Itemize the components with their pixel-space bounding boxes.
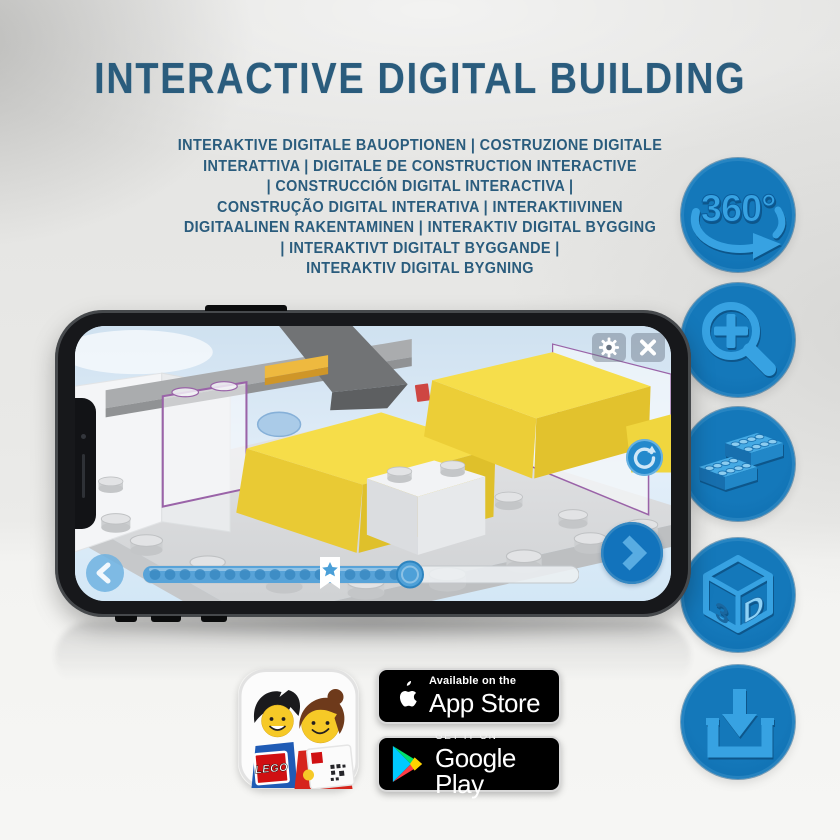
- subtitle-line: DIGITAALINEN RAKENTAMINEN | INTERAKTIV D…: [29, 218, 810, 239]
- subtitle-line: INTERATTIVA | DIGITALE DE CONSTRUCTION I…: [29, 157, 810, 178]
- feature-badge-zoom: [681, 283, 795, 397]
- phone-volume-up-button: [151, 616, 181, 622]
- chevron-right-icon: [601, 522, 663, 584]
- feature-badge-bricks: [681, 407, 795, 521]
- subtitle-line: CONSTRUÇÃO DIGITAL INTERATIVA | INTERAKT…: [29, 198, 810, 219]
- google-play-badge[interactable]: GET IT ON Google Play: [377, 736, 561, 792]
- subtitle-line: INTERAKTIV DIGITAL BYGNING: [29, 259, 810, 280]
- lego-logo: LEGO: [254, 752, 290, 785]
- rotate-model-button[interactable]: [626, 439, 663, 476]
- build-progress-slider[interactable]: [143, 556, 579, 600]
- gear-icon: [592, 333, 626, 362]
- subtitle-line: | CONSTRUCCIÓN DIGITAL INTERACTIVA |: [29, 177, 810, 198]
- rotate-arrow-icon: [626, 439, 663, 476]
- google-play-logo-icon: [391, 745, 425, 783]
- slider-thumb[interactable]: [397, 562, 423, 588]
- page-title-text: INTERACTIVE DIGITAL BUILDING: [94, 54, 746, 104]
- subtitle-line: INTERAKTIVE DIGITALE BAUOPTIONEN | COSTR…: [29, 136, 810, 157]
- cube-3d-right-label: D: [743, 587, 764, 631]
- app-store-name: App Store: [429, 690, 540, 716]
- phone-mockup: [55, 310, 691, 617]
- phone-reflection: [55, 622, 691, 692]
- speaker-slot: [82, 454, 85, 498]
- google-play-tagline: GET IT ON: [435, 732, 559, 742]
- bookmark-star-marker[interactable]: [320, 557, 340, 589]
- app-store-badge[interactable]: Available on the App Store: [377, 668, 561, 724]
- apple-logo-icon: [391, 678, 419, 714]
- phone-volume-down-button: [201, 616, 227, 622]
- lego-app-icon[interactable]: LEGO: [238, 669, 359, 789]
- qr-card: [307, 745, 355, 789]
- previous-step-button[interactable]: [86, 554, 124, 592]
- phone-notch: [75, 398, 96, 529]
- page-title: INTERACTIVE DIGITAL BUILDING: [0, 54, 840, 104]
- promo-poster: INTERACTIVE DIGITAL BUILDING INTERAKTIVE…: [0, 0, 840, 840]
- lego-bricks-icon: [681, 407, 795, 521]
- phone-mute-switch: [115, 616, 137, 622]
- subtitle-block: INTERAKTIVE DIGITALE BAUOPTIONEN | COSTR…: [0, 136, 840, 280]
- app-screen: [75, 326, 671, 601]
- step-dots: [150, 569, 401, 580]
- chevron-left-icon: [86, 554, 124, 592]
- cube-3d-left-label: 3: [715, 596, 729, 631]
- google-play-name: Google Play: [435, 745, 559, 797]
- phone-power-button: [205, 305, 287, 311]
- settings-button[interactable]: [592, 333, 626, 362]
- subtitle-line: | INTERAKTIVT DIGITALT BYGGANDE |: [29, 239, 810, 260]
- close-icon: [631, 333, 665, 362]
- feature-badge-download: [681, 665, 795, 779]
- next-step-button[interactable]: [601, 522, 663, 584]
- camera-dot: [81, 434, 86, 439]
- zoom-in-icon: [681, 283, 795, 397]
- feature-badge-3d: 3 D: [681, 538, 795, 652]
- cube-3d-icon: 3 D: [681, 538, 795, 652]
- app-store-tagline: Available on the: [429, 676, 540, 687]
- close-button[interactable]: [631, 333, 665, 362]
- download-icon: [681, 665, 795, 779]
